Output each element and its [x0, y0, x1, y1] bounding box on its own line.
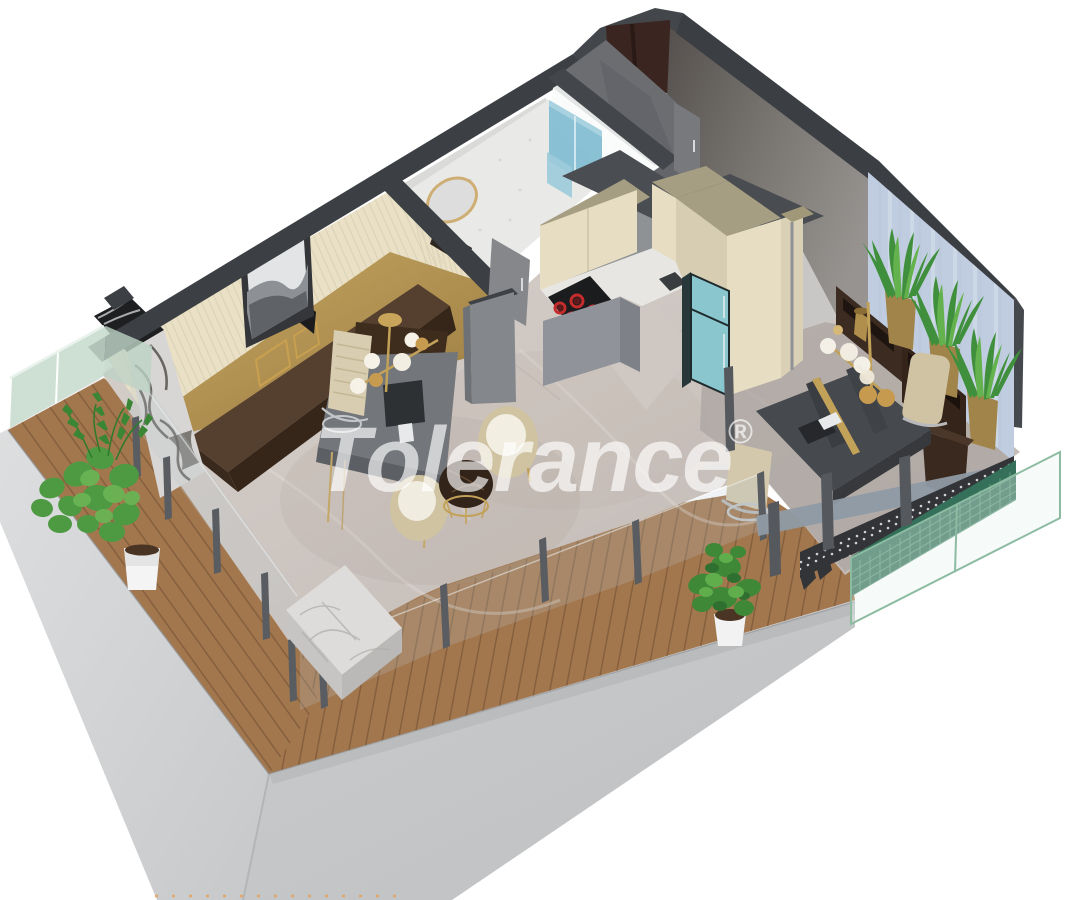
svg-text:Tolerance: Tolerance	[314, 409, 732, 511]
svg-text:®: ®	[728, 413, 753, 451]
